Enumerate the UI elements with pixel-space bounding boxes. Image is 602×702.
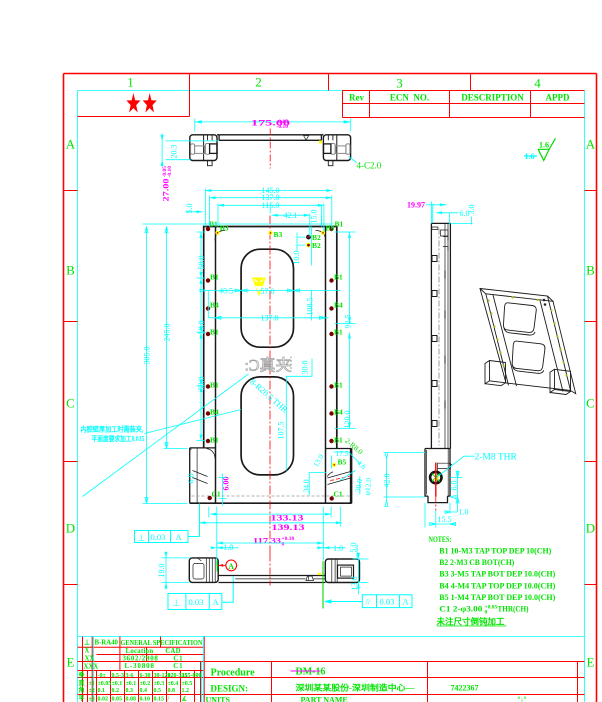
svg-text:C1 2-φ3.00: C1 2-φ3.00 bbox=[439, 605, 482, 614]
svg-text:5.0: 5.0 bbox=[349, 543, 358, 553]
svg-text:6.0: 6.0 bbox=[187, 474, 196, 484]
svg-text:4: 4 bbox=[534, 76, 541, 91]
svg-text:APPD: APPD bbox=[546, 93, 570, 103]
svg-text:XXX: XXX bbox=[84, 664, 99, 671]
svg-text:±0.2: ±0.2 bbox=[140, 681, 151, 687]
svg-text:直: 直 bbox=[79, 679, 85, 687]
svg-text:B3: B3 bbox=[326, 224, 335, 233]
svg-text:L-30808 C1: L-30808 C1 bbox=[125, 663, 184, 670]
svg-text:E: E bbox=[587, 655, 595, 670]
svg-text:0.03: 0.03 bbox=[189, 597, 204, 607]
svg-text:0.4: 0.4 bbox=[140, 688, 148, 694]
svg-text:30.0: 30.0 bbox=[301, 361, 310, 375]
svg-text:6-30: 6-30 bbox=[140, 673, 151, 679]
svg-text:B1 10-M3 TAP TOP DEP 10(CH): B1 10-M3 TAP TOP DEP 10(CH) bbox=[439, 547, 551, 556]
svg-text:±0.4: ±0.4 bbox=[168, 681, 179, 687]
svg-text:0.8: 0.8 bbox=[168, 688, 176, 694]
svg-text:57.0: 57.0 bbox=[261, 287, 275, 296]
svg-text:B2 2-M3 CB BOT(CH): B2 2-M3 CB BOT(CH) bbox=[439, 558, 514, 567]
svg-text:133.13: 133.13 bbox=[271, 514, 304, 523]
svg-text:0.2: 0.2 bbox=[112, 688, 120, 694]
svg-text:A: A bbox=[213, 597, 220, 607]
svg-text:15.5: 15.5 bbox=[438, 515, 452, 524]
svg-text:B: B bbox=[66, 263, 75, 278]
svg-text:A: A bbox=[586, 137, 596, 152]
svg-text://: // bbox=[366, 596, 371, 606]
svg-text:B1: B1 bbox=[334, 273, 343, 282]
svg-text:3: 3 bbox=[396, 76, 403, 91]
svg-text:B-RA40: B-RA40 bbox=[95, 640, 119, 647]
svg-text:DM-16: DM-16 bbox=[296, 667, 326, 678]
svg-text:平面度要求加工0.015: 平面度要求加工0.015 bbox=[92, 434, 145, 443]
svg-text:6.0: 6.0 bbox=[450, 481, 459, 491]
svg-text:B1: B1 bbox=[210, 328, 219, 337]
svg-text:13.0: 13.0 bbox=[350, 577, 359, 591]
svg-text:±2: ±2 bbox=[89, 688, 95, 694]
svg-text:NOTES:: NOTES: bbox=[429, 535, 452, 544]
svg-text:0.05: 0.05 bbox=[112, 697, 123, 702]
svg-text:0.5-3: 0.5-3 bbox=[112, 673, 125, 679]
svg-text:4-C2.0: 4-C2.0 bbox=[357, 161, 382, 171]
svg-text:58.0: 58.0 bbox=[197, 377, 206, 391]
svg-text:XX: XX bbox=[85, 656, 95, 663]
svg-text:0: 0 bbox=[485, 610, 488, 616]
svg-text:17.5: 17.5 bbox=[336, 449, 349, 458]
svg-text:A: A bbox=[176, 532, 183, 542]
svg-text:-0.10: -0.10 bbox=[167, 166, 173, 178]
svg-text:315-800: 315-800 bbox=[182, 673, 202, 679]
svg-text:20.3: 20.3 bbox=[170, 145, 179, 159]
svg-text:C1: C1 bbox=[212, 490, 221, 499]
svg-text:A: A bbox=[66, 137, 76, 152]
svg-text:137.0: 137.0 bbox=[261, 313, 279, 322]
svg-text:B1: B1 bbox=[334, 381, 343, 390]
svg-text:40.5: 40.5 bbox=[219, 287, 233, 296]
svg-text:Rev: Rev bbox=[349, 93, 364, 103]
svg-text:7422367: 7422367 bbox=[451, 684, 479, 693]
svg-text:B1: B1 bbox=[334, 328, 343, 337]
svg-text:1: 1 bbox=[127, 75, 134, 90]
svg-text:2: 2 bbox=[255, 75, 262, 90]
svg-text:Procedure: Procedure bbox=[211, 668, 256, 679]
svg-text:±0.5: ±0.5 bbox=[182, 681, 193, 687]
svg-text:0.02: 0.02 bbox=[98, 697, 109, 702]
svg-text:B: B bbox=[586, 263, 595, 278]
svg-text:120.0: 120.0 bbox=[343, 411, 352, 429]
svg-text:±3: ±3 bbox=[89, 697, 95, 702]
svg-text:±0.05: ±0.05 bbox=[98, 681, 112, 687]
svg-text:1.0: 1.0 bbox=[459, 508, 469, 517]
svg-text:27.00: 27.00 bbox=[162, 179, 171, 202]
svg-text:117.33: 117.33 bbox=[253, 537, 281, 546]
svg-text:DESIGN:: DESIGN: bbox=[211, 684, 249, 694]
svg-text:B1: B1 bbox=[210, 273, 219, 282]
svg-text:245.0: 245.0 bbox=[163, 324, 172, 342]
svg-text:C: C bbox=[66, 396, 75, 411]
svg-text:42.0: 42.0 bbox=[383, 474, 392, 488]
svg-text:3.0: 3.0 bbox=[467, 205, 476, 215]
svg-text:D: D bbox=[586, 521, 595, 536]
svg-text:B3 3-M5 TAP BOT DEP 10.0(CH): B3 3-M5 TAP BOT DEP 10.0(CH) bbox=[439, 570, 555, 579]
svg-text:±0.3: ±0.3 bbox=[154, 681, 165, 687]
svg-text:1.6: 1.6 bbox=[539, 141, 549, 150]
svg-text:⊥: ⊥ bbox=[138, 533, 146, 543]
svg-text:1.2: 1.2 bbox=[182, 688, 190, 694]
svg-text:B3: B3 bbox=[220, 224, 229, 233]
svg-text:夹真C:: 夹真C: bbox=[244, 357, 291, 375]
svg-text:0.5: 0.5 bbox=[154, 688, 162, 694]
svg-text:C1: C1 bbox=[334, 490, 343, 499]
svg-text:B5 1-M4 TAP BOT DEP 10.0(CH): B5 1-M4 TAP BOT DEP 10.0(CH) bbox=[439, 593, 555, 602]
svg-text:ECN NO.: ECN NO. bbox=[390, 93, 429, 103]
svg-text:0.1: 0.1 bbox=[98, 688, 106, 694]
svg-text:±0.1: ±0.1 bbox=[112, 681, 123, 687]
svg-text:0.3: 0.3 bbox=[126, 688, 134, 694]
svg-text:108.5: 108.5 bbox=[306, 298, 315, 316]
svg-text:139.13: 139.13 bbox=[272, 523, 305, 532]
svg-text:107.5: 107.5 bbox=[277, 422, 286, 440]
svg-text:115.0: 115.0 bbox=[262, 201, 280, 210]
svg-text:深圳某某股份-深圳制造中心—: 深圳某某股份-深圳制造中心— bbox=[296, 683, 416, 693]
svg-text:B1: B1 bbox=[210, 381, 219, 390]
svg-text:B3: B3 bbox=[274, 230, 283, 239]
svg-text:42.1: 42.1 bbox=[284, 211, 298, 220]
svg-text:X: X bbox=[85, 648, 90, 655]
svg-text:内腔壁厚加工时需装夹,: 内腔壁厚加工时需装夹, bbox=[81, 425, 144, 434]
svg-text:0.03: 0.03 bbox=[151, 532, 166, 542]
svg-text:DESCRIPTION: DESCRIPTION bbox=[461, 93, 524, 103]
svg-text:A: A bbox=[403, 596, 410, 606]
svg-text:B4: B4 bbox=[334, 301, 343, 310]
svg-text:B4 4-M4 TAP TOP DEP 10.0(CH): B4 4-M4 TAP TOP DEP 10.0(CH) bbox=[439, 581, 555, 590]
svg-text:/: / bbox=[167, 697, 170, 702]
svg-text:B2: B2 bbox=[312, 241, 321, 250]
svg-text:垂: 垂 bbox=[79, 671, 85, 679]
svg-text:305.0: 305.0 bbox=[143, 347, 152, 365]
svg-text:19.97: 19.97 bbox=[407, 201, 425, 210]
svg-text:B5: B5 bbox=[338, 458, 347, 467]
svg-text:58.0: 58.0 bbox=[197, 321, 206, 335]
svg-text:A: A bbox=[228, 562, 234, 571]
svg-text:10.0: 10.0 bbox=[292, 251, 301, 265]
svg-text:↔: ↔ bbox=[89, 673, 95, 679]
svg-text:未注尺寸倒钝加工: 未注尺寸倒钝加工 bbox=[436, 617, 506, 627]
svg-text:B4: B4 bbox=[210, 301, 219, 310]
svg-text:19.0: 19.0 bbox=[157, 564, 166, 578]
svg-text:PART NAME: PART NAME bbox=[301, 696, 348, 702]
svg-text:平: 平 bbox=[79, 696, 85, 702]
svg-text:0: 0 bbox=[282, 542, 285, 548]
svg-text:±1: ±1 bbox=[89, 681, 95, 687]
svg-text:D: D bbox=[66, 521, 75, 536]
svg-text:⊥: ⊥ bbox=[84, 639, 90, 647]
svg-text:0.03: 0.03 bbox=[380, 596, 395, 606]
svg-text:0.15: 0.15 bbox=[154, 697, 165, 702]
svg-text:THR(CH): THR(CH) bbox=[498, 605, 529, 614]
svg-text:0.08: 0.08 bbox=[126, 697, 137, 702]
svg-text:0.10: 0.10 bbox=[140, 697, 151, 702]
svg-text:B4: B4 bbox=[334, 408, 343, 417]
svg-text:⊥: ⊥ bbox=[173, 598, 181, 608]
svg-text:15.0: 15.0 bbox=[310, 210, 319, 224]
svg-text:5.0: 5.0 bbox=[185, 204, 194, 214]
svg-text:Location CAD: Location CAD bbox=[126, 648, 181, 655]
svg-text:°↓°: °↓° bbox=[518, 696, 527, 702]
svg-text:C: C bbox=[586, 396, 595, 411]
svg-text:92.5: 92.5 bbox=[344, 315, 353, 329]
svg-text:-0±: -0± bbox=[98, 673, 107, 679]
svg-text:-0.10: -0.10 bbox=[277, 124, 289, 130]
svg-text:58.0: 58.0 bbox=[197, 256, 206, 270]
svg-text:UNITS: UNITS bbox=[206, 696, 231, 702]
svg-text:∡: ∡ bbox=[182, 696, 187, 702]
svg-text:E: E bbox=[67, 655, 75, 670]
svg-text:角: 角 bbox=[79, 686, 85, 694]
svg-text:1.0: 1.0 bbox=[333, 544, 343, 553]
svg-text:±0.1: ±0.1 bbox=[126, 681, 137, 687]
svg-text:2-M8 THR: 2-M8 THR bbox=[475, 453, 518, 463]
svg-text:B1: B1 bbox=[334, 436, 343, 445]
svg-text:B1: B1 bbox=[210, 436, 219, 445]
svg-text:1.0: 1.0 bbox=[223, 543, 233, 552]
svg-text:3602/2908 C1: 3602/2908 C1 bbox=[123, 656, 184, 663]
svg-text:GENERAL SPECIFICATION: GENERAL SPECIFICATION bbox=[121, 640, 203, 647]
svg-text:B1: B1 bbox=[335, 220, 344, 229]
svg-text:3-6: 3-6 bbox=[126, 673, 134, 679]
